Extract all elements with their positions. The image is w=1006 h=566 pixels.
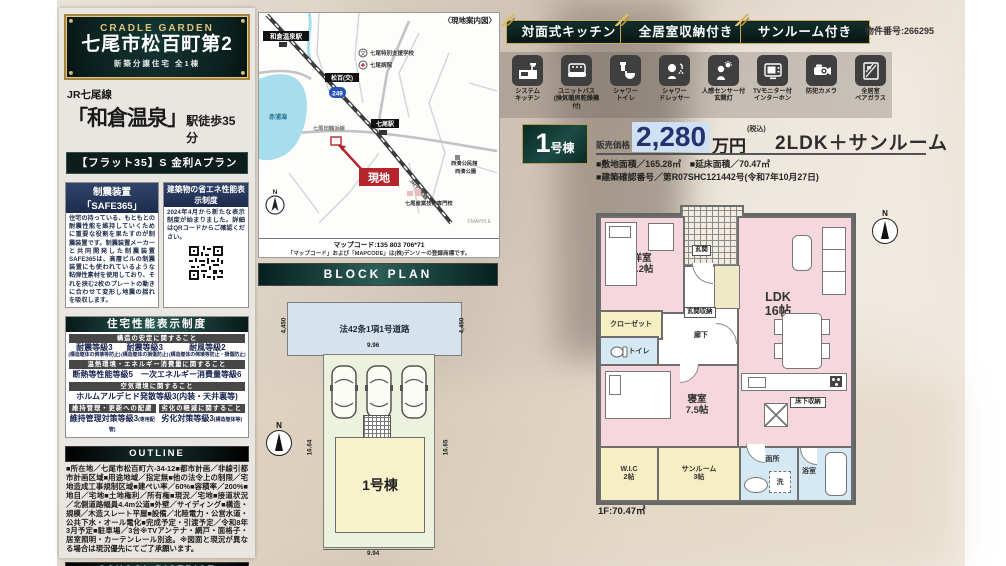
map-drawing: 赤浦潟 JR七尾線 和倉温泉駅 松百(交) 249 [259, 13, 497, 227]
underfloor-storage-label: 床下収納 [790, 397, 826, 408]
property-subtitle: 新築分譲住宅 全1棟 [66, 58, 248, 69]
walk-time: 駅徒歩35分 [186, 112, 247, 146]
desk-icon [648, 223, 674, 251]
compass-n-label: N [872, 210, 898, 218]
grade-note: (構造躯体の損傷防止) [121, 353, 168, 358]
dining-table-icon [782, 313, 822, 369]
badge-label: サンルーム付き [758, 25, 852, 39]
unit-number: 1 [535, 125, 550, 161]
shower-dresser-icon [659, 55, 690, 86]
loan-banner: 【フラット35】S 金利Aプラン [66, 152, 248, 174]
tax-note: (税込) [747, 124, 766, 134]
feature-label: ユニットバス (換気暖房乾燥機付) [552, 88, 601, 110]
feature-item: 人感センサー付 玄関灯 [699, 55, 748, 110]
pillow-icon [609, 226, 631, 238]
washing-machine-icon: 洗 [769, 471, 791, 493]
poi-college-label: 七尾産業技術専門校 [405, 199, 453, 207]
kitchen-sink [748, 377, 766, 388]
badge-storage: 全居室収納付き [620, 20, 752, 44]
intersection-label: 松百(交) [331, 74, 353, 82]
feature-item: 防犯カメラ [797, 55, 846, 110]
car-icon [330, 363, 358, 421]
energy-box-title: 建築物の省エネ性能表示制度 [164, 183, 248, 207]
property-number: 物件番号:266295 [865, 24, 934, 37]
intersection-chip: 松百(交) [325, 73, 359, 82]
price-divider [596, 153, 926, 155]
feature-label: 人感センサー付 玄関灯 [699, 88, 748, 103]
feature-item: シャワー トイレ [601, 55, 650, 110]
screw-icon [69, 19, 73, 23]
map-credit: ©MAPPLE [467, 218, 492, 225]
room-label: サンルーム 3帖 [682, 466, 717, 482]
rail-line-name: JR七尾線 [67, 87, 247, 102]
entrance-storage-label: 玄関収納 [684, 307, 716, 318]
pair-glass-icon [855, 55, 886, 86]
grade-degradation: 劣化対策等級3(構造躯体等) [159, 414, 246, 424]
brand-plaque: CRADLE GARDEN 七尾市松百町第2 新築分譲住宅 全1棟 [64, 14, 250, 80]
badge-label: 対面式キッチン [522, 25, 617, 39]
screw-icon [241, 19, 245, 23]
site-parcel: 1号棟 [323, 354, 435, 548]
brand-logo: CRADLE GARDEN [66, 23, 248, 34]
security-camera-icon [806, 55, 837, 86]
performance-header-structure: 構造の安定に関すること [69, 334, 245, 343]
lake-label: 赤浦潟 [269, 113, 287, 121]
map-compass-n: N [273, 189, 278, 196]
feature-label: シャワー ドレッサー [650, 88, 699, 103]
feature-label: TVモニター付 インターホン [748, 88, 797, 103]
feature-item: 全居室 ペアガラス [846, 55, 895, 110]
bed-icon [605, 371, 671, 419]
block-plan-section: BLOCK PLAN 法42条1項1号道路 4,450 4,450 9.96 1… [258, 263, 498, 558]
parking-spaces [330, 363, 428, 421]
screw-icon [69, 71, 73, 75]
room-label: 浴室 [802, 468, 816, 476]
chair-icon [821, 319, 830, 335]
compass-icon [266, 430, 292, 456]
wic-room: W.I.C 2帖 [599, 446, 659, 502]
station-top-label: 和倉温泉駅 [270, 32, 303, 41]
poi-park-label: 西湊公園 [455, 167, 476, 175]
grade-label: 耐風等級2 [169, 344, 246, 353]
entrance-storage-cabinet [714, 265, 740, 309]
road-depth-dim-right: 4,450 [458, 318, 465, 334]
gold-corner-decoration [735, 14, 749, 26]
feature-item: システム キッチン [503, 55, 552, 110]
room-label: トイレ [629, 348, 650, 356]
site-depth-dim-right: 16.65 [442, 440, 449, 456]
outline-header: OUTLINE [65, 446, 249, 462]
outline-body: ■所在地／七尾市松百町六-34-12■都市計画／非線引都市計画区域■用途地域／指… [66, 465, 248, 554]
grade-item: 耐震等級3 (構造躯体の損傷防止) [121, 344, 168, 358]
feature-label: 全居室 ペアガラス [846, 88, 895, 103]
gold-corner-decoration [501, 14, 515, 26]
grade-label: 劣化対策等級3 [161, 414, 213, 423]
feature-item: ユニットバス (換気暖房乾燥機付) [552, 55, 601, 110]
block-plan-drawing: 法42条1項1号道路 4,450 4,450 9.96 1号棟 16.64 16… [258, 286, 498, 560]
energy-label-box: 建築物の省エネ性能表示制度 2024年4月から新たな表示制度が始まりました。詳細… [163, 182, 249, 308]
svg-text:文: 文 [360, 50, 366, 58]
seismic-box-title: 制震装置「SAFE365」 [66, 183, 158, 213]
block-plan-header: BLOCK PLAN [258, 263, 498, 286]
mapcode-text: マップコード:135 803 706*71 [259, 239, 499, 249]
sunroom: サンルーム 3帖 [657, 446, 741, 502]
performance-header-air: 空気環境に関すること [69, 382, 245, 391]
grade-thermal: 断熱等性能等級5 一次エネルギー消費量等級6 [66, 370, 248, 380]
grade-item: 耐震等級3 (構造躯体の倒壊等防止) [68, 344, 120, 358]
tv-monitor-interphone-icon [757, 55, 788, 86]
flyer-canvas: CRADLE GARDEN 七尾市松百町第2 新築分譲住宅 全1棟 JR七尾線 … [0, 0, 1006, 566]
system-kitchen-icon [512, 55, 543, 86]
seismic-box-body: 住宅の持っている、もともとの耐震性能を維持していくために重要な役割を果たすのが制… [66, 213, 158, 307]
price-label: 販売価格 [596, 139, 630, 151]
poi-hospital-label: 七尾病院 [370, 61, 393, 69]
energy-box-body: 2024年4月から新たな表示制度が始まりました。詳細はQRコードからご確認くださ… [164, 207, 248, 244]
toilet-icon [609, 345, 629, 359]
grade-maintenance: 維持管理対策等級3(専用配管) [69, 414, 156, 434]
room-label: 寝室 7.5帖 [686, 395, 709, 417]
feature-label: 防犯カメラ [797, 88, 846, 95]
performance-header-degradation: 劣化の軽減に関すること [159, 404, 246, 413]
feature-label: シャワー トイレ [601, 88, 650, 103]
degradation-column: 劣化の軽減に関すること 劣化対策等級3(構造躯体等) [159, 404, 246, 434]
floor-plan-compass: N [872, 210, 898, 244]
property-title: 七尾市松百町第2 [66, 35, 248, 56]
school-district-header: SCHOOL DISTRICT [65, 562, 249, 566]
car-icon [400, 363, 428, 421]
grade-air: ホルムアルデヒド発散等級3(内装・天井裏等) [66, 392, 248, 402]
location-map: 〈現地案内図〉 赤浦潟 JR七尾線 [258, 12, 500, 258]
bed-icon [605, 222, 637, 286]
room-label: クローゼット [610, 321, 652, 329]
block-plan-compass: N [266, 422, 292, 456]
seismic-device-box: 制震装置「SAFE365」 住宅の持っている、もともとの耐震性能を維持していくた… [65, 182, 159, 308]
kitchen-counter [741, 373, 847, 391]
coffee-table-icon [792, 235, 812, 271]
grade-note: (構造躯体の倒壊等防止) [68, 353, 120, 358]
floor-plan: 玄関 洋室 5.2帖 LDK 16帖 クローゼット トイレ 寝室 7.5帖 W.… [596, 205, 856, 505]
room-label: W.I.C 2帖 [620, 466, 637, 482]
route-shield: 249 [329, 87, 346, 98]
unit-number-plaque: 1 号棟 [522, 124, 588, 164]
poi-school-label: 七尾特別支援学校 [370, 49, 415, 57]
compass-icon [872, 218, 898, 244]
pillow-icon [609, 375, 621, 395]
qr-code-icon [189, 246, 223, 280]
bathtub-icon [825, 452, 847, 496]
badge-sunroom: サンルーム付き [740, 20, 870, 44]
performance-header-thermal: 温熱環境・エネルギー消費量に関すること [69, 360, 245, 369]
feature-icon-row: システム キッチン ユニットバス (換気暖房乾燥機付) シャワー トイレ シャワ… [503, 55, 895, 110]
mapcode-footer: マップコード:135 803 706*71 「マップコード」および「MAPCOD… [259, 238, 499, 257]
car-icon [365, 363, 393, 421]
grade-label: 維持管理対策等級3 [70, 414, 138, 423]
chair-icon [774, 319, 783, 335]
underfloor-storage-hatch [764, 403, 788, 427]
grade-item: 耐風等級2 (構造躯体の倒壊等防止・損傷防止) [169, 344, 246, 358]
site-depth-dim-left: 16.64 [306, 440, 313, 456]
site-label: 現地 [368, 171, 390, 185]
stove-icon [830, 376, 842, 387]
screw-icon [241, 71, 245, 75]
building-footprint: 1号棟 [335, 437, 425, 533]
area-info: ■敷地面積／165.28㎡ ■延床面積／70.47㎡ [596, 157, 770, 170]
grade-note: (構造躯体の倒壊等防止・損傷防止) [169, 353, 246, 358]
price-value: 2,280 [632, 122, 710, 152]
unit-bath-icon [561, 55, 592, 86]
gold-corner-decoration [615, 14, 629, 26]
feature-item: シャワー ドレッサー [650, 55, 699, 110]
hospital-poi: 七尾病院 [359, 61, 393, 69]
access-info: JR七尾線 「和倉温泉」 駅徒歩35分 [67, 87, 247, 146]
feature-label: システム キッチン [503, 88, 552, 103]
performance-title: 住宅性能表示制度 [66, 317, 248, 332]
performance-grades-box: 住宅性能表示制度 構造の安定に関すること 耐震等級3 (構造躯体の倒壊等防止) … [65, 316, 249, 438]
washbasin-icon [744, 477, 768, 493]
shower-toilet-icon [610, 55, 641, 86]
chair-icon [774, 343, 783, 359]
grade-note: (構造躯体等) [214, 417, 242, 423]
mapcode-trademark: 「マップコード」および「MAPCODE」は(株)デンソーの登録商標です。 [259, 249, 499, 257]
route-number: 249 [332, 91, 343, 98]
grade-label: 耐震等級3 [68, 344, 120, 353]
grade-label: 耐震等級3 [121, 344, 168, 353]
performance-header-maintenance: 維持管理・更新への配慮に関すること [69, 404, 156, 413]
entrance-label: 玄関 [692, 245, 711, 256]
feature-item: TVモニター付 インターホン [748, 55, 797, 110]
maintenance-column: 維持管理・更新への配慮に関すること 維持管理対策等級3(専用配管) [69, 404, 156, 434]
station-name: 「和倉温泉」 [67, 102, 186, 132]
motion-sensor-light-icon [708, 55, 739, 86]
map-caption: 〈現地案内図〉 [444, 15, 497, 26]
unit-number-suffix: 号棟 [551, 139, 575, 156]
road-label: 七尾田鶴浜線 [313, 124, 345, 132]
bottom-dim: 9.94 [367, 550, 379, 557]
chair-icon [821, 343, 830, 359]
hallway-label: 廊下 [692, 331, 710, 340]
sofa-icon [822, 227, 846, 295]
frontage-dim: 9.96 [367, 342, 379, 349]
station-low-label: 七尾駅 [376, 120, 395, 128]
badge-kitchen: 対面式キッチン [506, 20, 632, 44]
entrance-area [680, 205, 744, 267]
compass-n-label: N [266, 422, 292, 430]
poi-community-label: 西湊公民館 [451, 159, 478, 167]
floor-total-area: 1F:70.47㎡ [598, 503, 646, 517]
left-info-panel: CRADLE GARDEN 七尾市松百町第2 新築分譲住宅 全1棟 JR七尾線 … [59, 8, 255, 558]
badge-label: 全居室収納付き [639, 25, 734, 39]
road-depth-dim-left: 4,450 [280, 318, 287, 334]
confirmation-info: ■建築確認番号／第R07SHC121442号(令和7年10月27日) [596, 170, 819, 183]
plan-type: 2LDK＋サンルーム [775, 128, 948, 155]
